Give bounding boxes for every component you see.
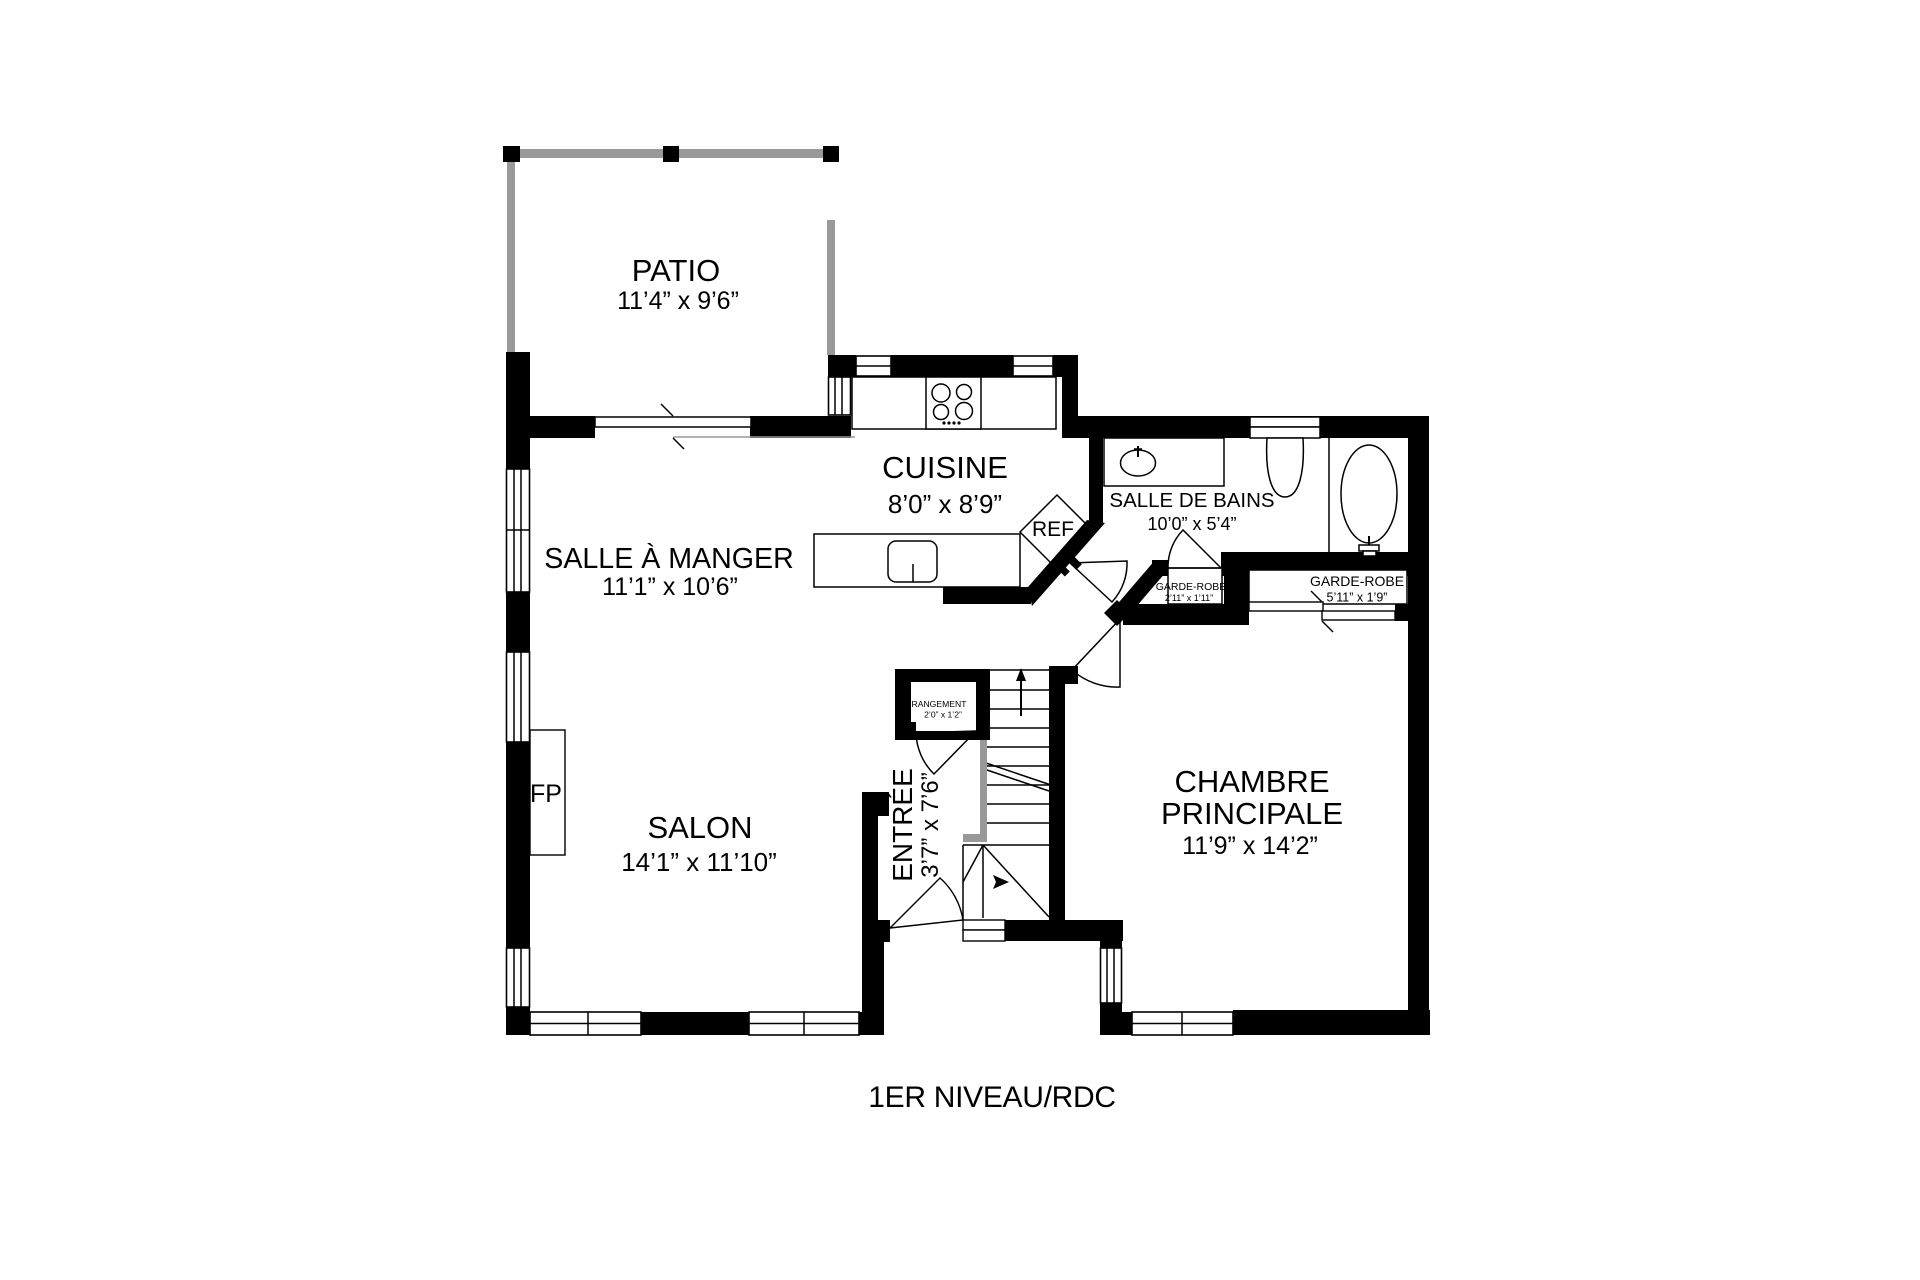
svg-text:3’7” x 7’6”: 3’7” x 7’6” [917, 772, 944, 877]
svg-text:14’1” x 11’10”: 14’1” x 11’10” [621, 847, 777, 877]
svg-text:2’0” x 1’2”: 2’0” x 1’2” [924, 710, 962, 720]
svg-text:FP: FP [530, 780, 562, 808]
svg-text:11’9” x 14’2”: 11’9” x 14’2” [1182, 832, 1318, 860]
svg-text:SALON: SALON [647, 810, 752, 845]
svg-text:PATIO: PATIO [632, 253, 720, 288]
svg-text:1ER NIVEAU/RDC: 1ER NIVEAU/RDC [868, 1081, 1116, 1114]
svg-text:CHAMBRE: CHAMBRE [1174, 764, 1329, 799]
svg-text:REF: REF [1032, 518, 1074, 541]
svg-text:5’11” x 1’9”: 5’11” x 1’9” [1327, 591, 1388, 605]
svg-text:GARDE-ROBE: GARDE-ROBE [1310, 573, 1404, 589]
svg-text:GARDE-ROBE: GARDE-ROBE [1156, 581, 1227, 593]
svg-text:8’0” x 8’9”: 8’0” x 8’9” [888, 489, 1002, 519]
svg-text:PRINCIPALE: PRINCIPALE [1161, 796, 1343, 831]
svg-text:11’1” x 10’6”: 11’1” x 10’6” [602, 573, 738, 601]
svg-text:CUISINE: CUISINE [882, 450, 1008, 485]
svg-text:ENTRÉE: ENTRÉE [887, 768, 918, 882]
svg-text:RANGEMENT: RANGEMENT [912, 699, 968, 709]
svg-text:10’0” x 5’4”: 10’0” x 5’4” [1147, 514, 1236, 534]
svg-text:2’11” x 1’11”: 2’11” x 1’11” [1165, 593, 1213, 603]
svg-text:11’4” x 9’6”: 11’4” x 9’6” [617, 287, 739, 315]
svg-text:SALLE DE BAINS: SALLE DE BAINS [1109, 489, 1274, 512]
svg-text:SALLE À MANGER: SALLE À MANGER [544, 542, 793, 575]
